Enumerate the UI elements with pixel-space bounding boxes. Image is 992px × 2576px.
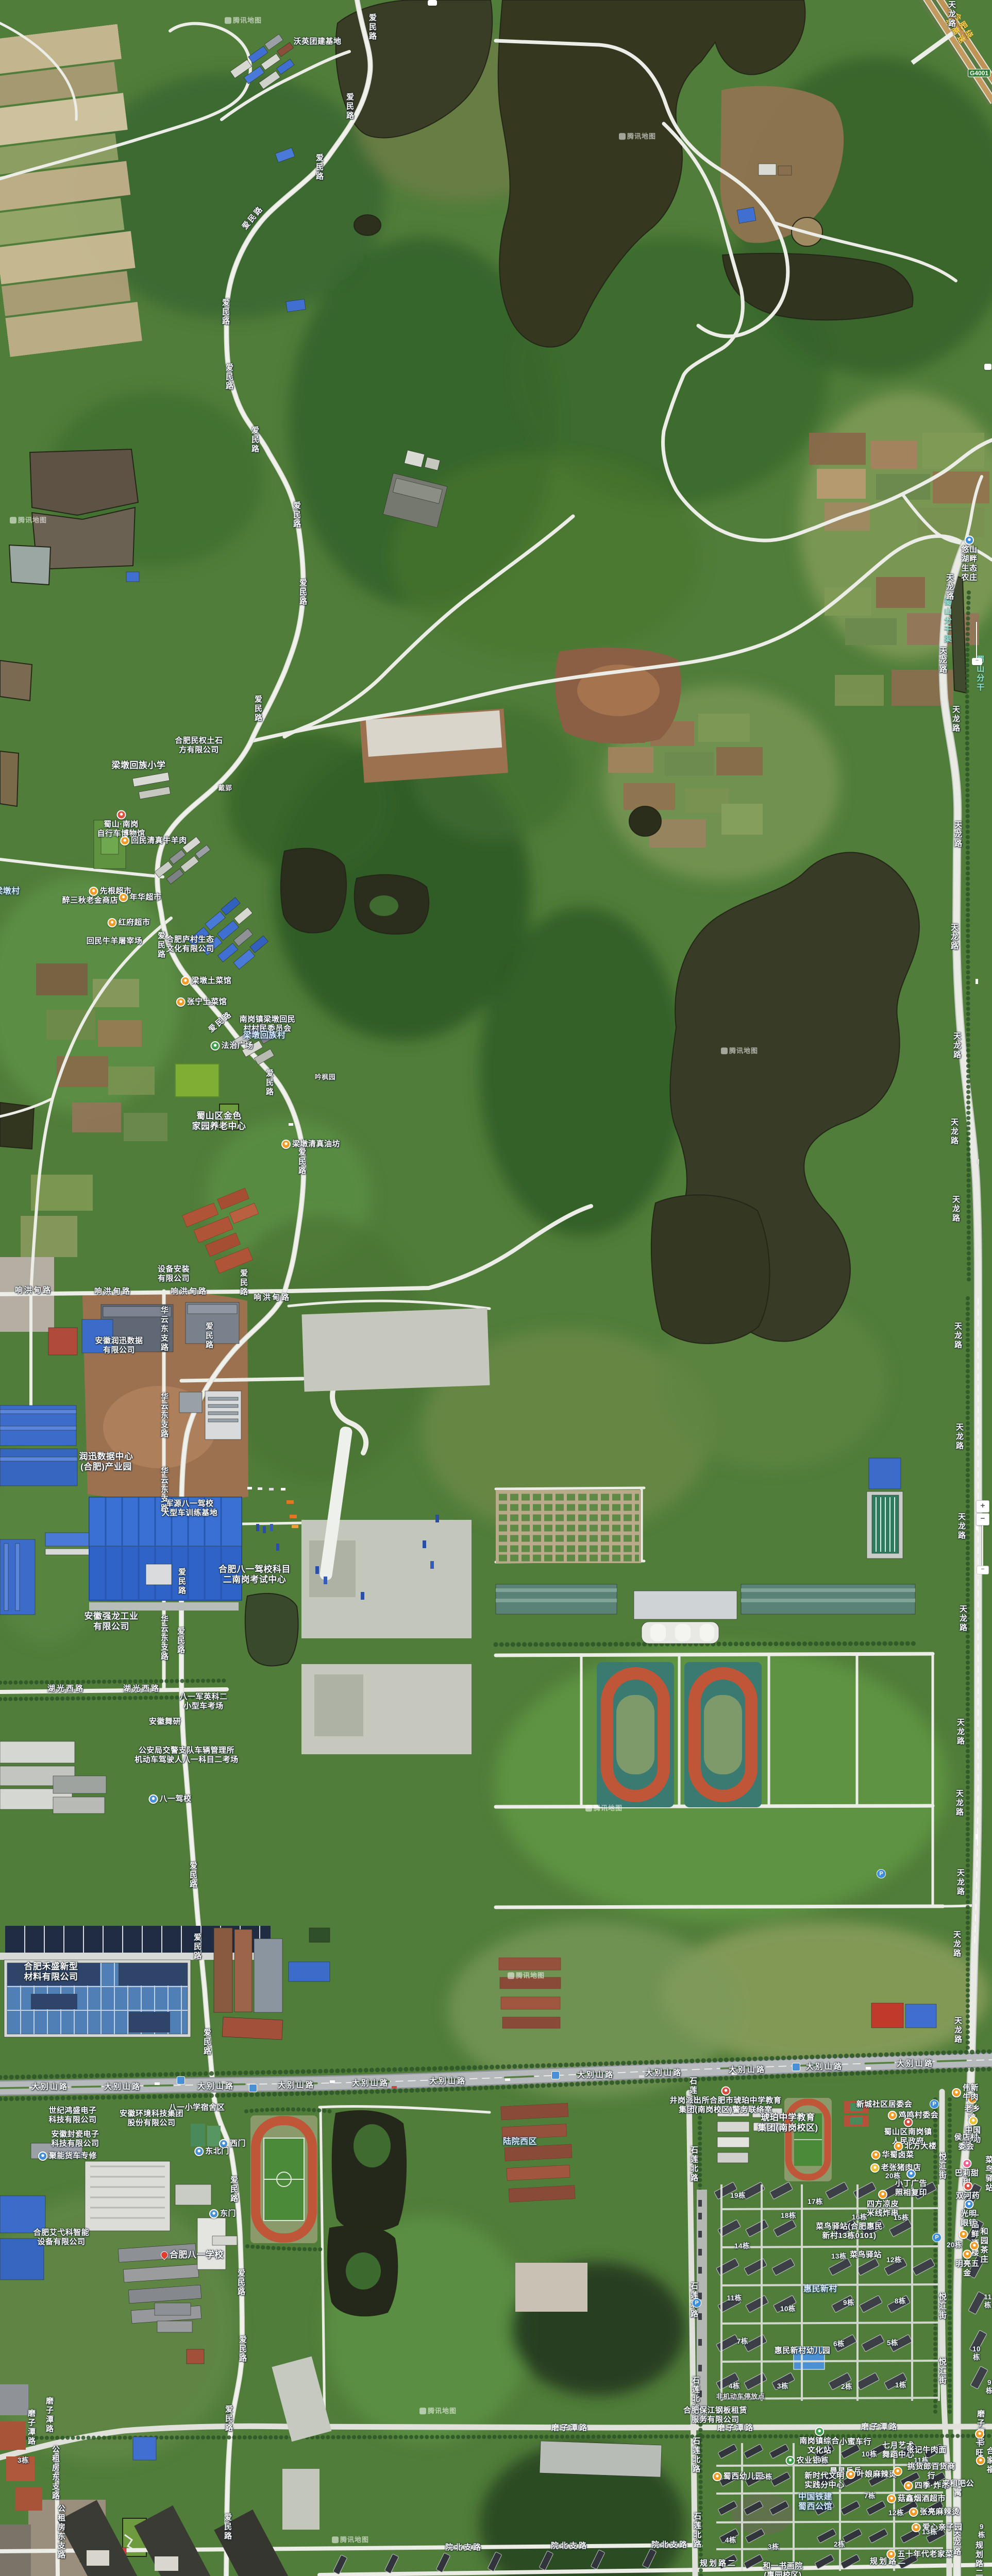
label-text: 天龙路 bbox=[958, 1605, 967, 1633]
label-text: 磨子潭路 bbox=[551, 2424, 589, 2433]
poi-orange-icon[interactable] bbox=[846, 2470, 855, 2479]
road-label: 爱民路 bbox=[176, 1627, 185, 1655]
road-label: 天龙路 bbox=[945, 573, 954, 601]
map-label: 2栋 bbox=[841, 2383, 852, 2391]
poi-orange-icon[interactable] bbox=[181, 976, 190, 986]
zoom-control[interactable]: + − − bbox=[976, 1500, 989, 1574]
poi-orange-icon[interactable] bbox=[176, 997, 186, 1007]
poi-orange-icon[interactable] bbox=[886, 2550, 896, 2559]
poi-label[interactable]: 南岗镇综合 文化站 bbox=[799, 2427, 839, 2455]
label-text: 合肥八一驾校科目 二南岗考试中心 bbox=[218, 1565, 291, 1586]
label-text: 八一驾校 bbox=[159, 1794, 191, 1804]
poi-label: 合肥禾盛新型 材料有限公司 bbox=[24, 1962, 78, 1983]
poi-orange-icon[interactable] bbox=[976, 2456, 985, 2465]
map-label: 1栋 bbox=[895, 2381, 906, 2389]
poi-label: 世纪鸿盛电子 科技有限公司 bbox=[48, 2106, 96, 2125]
poi-label[interactable]: 年华超市 bbox=[119, 893, 161, 902]
poi-label: 合肥民权土石 方有限公司 bbox=[175, 736, 223, 755]
poi-label[interactable]: 井岗派出所合肥市琥珀中学教育 集团(南岗校区)警务联络室 bbox=[669, 2087, 781, 2115]
poi-yellow-icon[interactable] bbox=[968, 2116, 978, 2126]
label-text: 惠民新村幼儿园 bbox=[775, 2346, 831, 2355]
parking-icon[interactable]: P bbox=[692, 2298, 701, 2308]
map-label: 16栋 bbox=[852, 2213, 867, 2222]
poi-gate-icon[interactable] bbox=[148, 1794, 158, 1804]
label-text: 井岗派出所合肥市琥珀中学教育 集团(南岗校区)警务联络室 bbox=[669, 2096, 781, 2115]
label-text: 腾讯地图 bbox=[627, 132, 656, 141]
poi-label[interactable]: 回民清真牛羊肉 bbox=[120, 836, 187, 845]
road-label: 大别山路 bbox=[278, 2081, 315, 2090]
road-label: 爱民路 bbox=[202, 2028, 211, 2056]
road-label: 大别山路 bbox=[31, 2082, 69, 2092]
label-text: 爱民路 bbox=[223, 2513, 232, 2541]
poi-gov-icon[interactable] bbox=[903, 2118, 913, 2127]
road-label: 天龙路 bbox=[951, 1195, 960, 1223]
road-label: 爱民路 bbox=[253, 695, 262, 723]
label-text: 腾讯地图 bbox=[428, 2407, 457, 2415]
watermark: 腾讯地图 bbox=[619, 132, 656, 141]
poi-label[interactable]: 梁墩清真油坊 bbox=[281, 1140, 340, 1149]
label-text: 13栋 bbox=[831, 2252, 847, 2261]
label-text: 7栋 bbox=[737, 2337, 748, 2346]
poi-label[interactable]: 合家福 bbox=[976, 2447, 992, 2475]
poi-orange-icon[interactable] bbox=[975, 2430, 984, 2439]
label-text: 梁墩清真油坊 bbox=[292, 1140, 340, 1149]
label-text: 响洪甸路 bbox=[171, 1287, 208, 1296]
road-label: 规划路二 bbox=[700, 2559, 737, 2568]
poi-label: 戴郢 bbox=[218, 784, 232, 792]
label-text: 年华超市 bbox=[129, 893, 161, 902]
label-text: 腾讯地图 bbox=[729, 1047, 758, 1055]
label-text: 南岗镇综合 文化站 bbox=[799, 2437, 839, 2455]
area-label: 陆院西区 bbox=[503, 2137, 537, 2146]
label-text: 华云东支路 bbox=[159, 1393, 169, 1439]
label-text: 天龙路 bbox=[956, 1513, 966, 1540]
label-text: 小蜜车行 bbox=[839, 2437, 871, 2447]
poi-orange-icon[interactable] bbox=[887, 2494, 896, 2503]
label-text: 爱民路 bbox=[314, 154, 324, 181]
label-text: 11栋 bbox=[727, 2294, 742, 2302]
poi-label: 侯店村委会 bbox=[953, 2133, 979, 2151]
zoom-slider-track[interactable] bbox=[982, 1526, 983, 1566]
label-text: 9栋 bbox=[843, 2299, 854, 2307]
poi-label: 合肥艾弋科智能 设备有限公司 bbox=[33, 2228, 90, 2247]
poi-label: 惠民新村幼儿园 bbox=[775, 2346, 831, 2355]
poi-label[interactable]: 菇鑫烟酒超市 bbox=[887, 2494, 946, 2503]
road-label: 爱民路 bbox=[298, 579, 307, 606]
map-label: 4栋 bbox=[725, 2536, 736, 2545]
road-label: 大别山路 bbox=[429, 2077, 466, 2086]
road-label: 公租房东支路 bbox=[56, 2504, 65, 2560]
poi-label: 菜鸟驿站(合肥惠民 新村13栋0101) bbox=[816, 2222, 883, 2241]
poi-orange-icon[interactable] bbox=[912, 2523, 921, 2532]
poi-blue-icon[interactable] bbox=[906, 2170, 916, 2179]
label-text: 醉三秋老金商店 bbox=[62, 896, 119, 905]
parking-icon[interactable]: P bbox=[877, 1869, 886, 1878]
road-label: 爱民路 bbox=[236, 2269, 245, 2297]
road-label: 爱民路 bbox=[188, 1861, 197, 1889]
poi-label[interactable]: 梁墩土菜馆 bbox=[181, 976, 232, 986]
road-label: 爱民路 bbox=[156, 931, 165, 959]
poi-label: 设备安装 有限公司 bbox=[158, 1265, 190, 1283]
poi-orange-icon[interactable] bbox=[120, 836, 129, 845]
label-text: 湖光西路 bbox=[47, 1684, 85, 1693]
poi-label[interactable]: 小丁广告 照相复印 bbox=[895, 2170, 927, 2198]
poi-label[interactable]: 叶娘麻辣烫 bbox=[846, 2470, 897, 2479]
road-label: 大别山路 bbox=[352, 2079, 389, 2088]
bus-stop-icon[interactable] bbox=[792, 2063, 800, 2071]
poi-label[interactable]: 悠山湖畔 生态农庄 bbox=[958, 536, 981, 583]
bus-stop-icon[interactable] bbox=[177, 2076, 185, 2084]
label-text: 院北支路 bbox=[551, 2541, 588, 2551]
gate-label[interactable]: 东门 bbox=[209, 2209, 236, 2218]
poi-red-icon[interactable] bbox=[963, 2182, 972, 2191]
label-text: 响洪甸路 bbox=[15, 1286, 52, 1295]
label-text: 大别山路 bbox=[577, 2071, 614, 2080]
label-text: 天龙路 bbox=[955, 1869, 965, 1896]
poi-green-icon[interactable] bbox=[785, 2456, 795, 2465]
poi-gate-icon[interactable] bbox=[209, 2209, 218, 2218]
gate-label[interactable]: 东北门 bbox=[194, 2147, 229, 2156]
road-label: 大别山路 bbox=[104, 2082, 141, 2092]
area-label: 梁墩村 bbox=[0, 886, 20, 896]
poi-label[interactable]: 张宁土菜馆 bbox=[176, 997, 227, 1007]
poi-orange-icon[interactable] bbox=[281, 1140, 291, 1149]
poi-label[interactable]: 北方大楼 bbox=[894, 2142, 936, 2151]
label-text: 4栋 bbox=[729, 2382, 740, 2391]
label-text: 爱民路 bbox=[253, 695, 262, 723]
poi-orange-icon[interactable] bbox=[878, 2190, 887, 2199]
watermark: 腾讯地图 bbox=[332, 2536, 369, 2544]
label-text: 聚能货车专修 bbox=[49, 2151, 97, 2161]
road-label: 天龙路 bbox=[954, 1789, 964, 1817]
label-text: 爱民路 bbox=[238, 2335, 247, 2363]
label-text: 梁墩土菜馆 bbox=[192, 976, 232, 986]
poi-label[interactable]: 挑货郎百货商行 bbox=[893, 2462, 959, 2481]
poi-label[interactable]: 明亮五金 bbox=[955, 2250, 980, 2278]
label-text: 菜鸟驿站 bbox=[985, 2156, 992, 2193]
map-label: 11栋 bbox=[984, 2293, 991, 2310]
poi-label: 非机动车停放点 bbox=[716, 2393, 765, 2401]
label-text: 琥珀中学教育 集团(南岗校区) bbox=[758, 2113, 818, 2134]
label-text: 爱民路 bbox=[221, 298, 230, 326]
poi-label[interactable]: 法治广场 bbox=[210, 1041, 253, 1050]
poi-pink-icon[interactable] bbox=[962, 2159, 971, 2168]
label-text: 石莲北路 bbox=[689, 2146, 698, 2183]
poi-label[interactable]: 八一驾校 bbox=[148, 1794, 191, 1804]
label-text: 华蜀卤菜 bbox=[882, 2150, 914, 2160]
label-text: 磨子潭路 bbox=[717, 2424, 754, 2433]
poi-label: 菜鸟驿站 bbox=[985, 2156, 992, 2193]
label-text: 磨子潭路 bbox=[44, 2397, 54, 2434]
label-text: 爱民路 bbox=[239, 1269, 248, 1297]
poi-label: 安徽润迅数据 有限公司 bbox=[95, 1336, 143, 1355]
road-label: 大别山路 bbox=[645, 2069, 682, 2078]
map-label: 7栋 bbox=[864, 2492, 876, 2500]
label-text: 大别山路 bbox=[429, 2077, 466, 2086]
label-text: 6栋 bbox=[833, 2340, 845, 2348]
poi-orange-icon[interactable] bbox=[970, 2241, 979, 2250]
label-text: 8栋 bbox=[895, 2297, 906, 2306]
label-text: 安徽润迅数据 有限公司 bbox=[95, 1336, 143, 1355]
label-text: 明亮五金 bbox=[955, 2260, 980, 2278]
label-text: 9栋 bbox=[817, 2456, 829, 2465]
satellite-canvas[interactable] bbox=[0, 0, 992, 2576]
label-text: P bbox=[877, 1869, 886, 1878]
road-label: 爱民路 bbox=[224, 2405, 233, 2433]
road-label: 大别山路 bbox=[729, 2065, 766, 2075]
label-text: 中国铁建 蜀西公馆 bbox=[798, 2492, 832, 2512]
label-text: 湖光西路 bbox=[123, 1684, 160, 1693]
label-text: 9栋 bbox=[977, 2523, 987, 2539]
poi-red-icon[interactable] bbox=[116, 810, 126, 820]
poi-label: 回民牛羊屠宰场 bbox=[87, 937, 143, 946]
poi-label[interactable]: 蜀西幼儿园 bbox=[713, 2472, 764, 2481]
label-text: 安徽封瓷电子 科技有限公司 bbox=[51, 2130, 99, 2148]
bus-stop-icon[interactable] bbox=[551, 2071, 560, 2079]
map-label: 15栋 bbox=[894, 2214, 909, 2222]
road-label: 天龙路 bbox=[949, 1118, 959, 1146]
poi-gov-icon[interactable] bbox=[721, 2087, 730, 2096]
poi-orange-icon[interactable] bbox=[89, 887, 98, 896]
road-label: 爱民路 bbox=[297, 1148, 306, 1176]
label-text: 梁墩回族村 bbox=[243, 1030, 286, 1040]
label-text: 17栋 bbox=[808, 2198, 823, 2206]
road-label: 爱民路 bbox=[250, 426, 259, 454]
label-text: 华云东支路 bbox=[159, 1306, 169, 1352]
road-label: 爱民路 bbox=[238, 2335, 247, 2363]
poi-orange-icon[interactable] bbox=[871, 2150, 880, 2160]
label-text: 石莲北路 bbox=[691, 2437, 700, 2474]
poi-label: 润迅数据中心 (合肥)产业园 bbox=[79, 1452, 133, 1473]
label-text: 11栋 bbox=[984, 2293, 991, 2310]
watermark: 腾讯地图 bbox=[10, 516, 47, 524]
label-text: 北方大楼 bbox=[904, 2142, 936, 2151]
label-text: 非机动车停放点 bbox=[716, 2393, 765, 2401]
label-text: 9栋 bbox=[986, 2379, 992, 2395]
label-text: 14栋 bbox=[734, 2242, 750, 2250]
poi-label[interactable]: 张亮麻辣烫 bbox=[909, 2507, 960, 2517]
map-label: 9栋 bbox=[817, 2456, 829, 2465]
road-label: 响洪甸路 bbox=[171, 1287, 208, 1296]
parking-icon[interactable]: P bbox=[930, 2099, 939, 2109]
map-label: 12栋 bbox=[888, 2509, 904, 2517]
poi-label[interactable]: 华蜀卤菜 bbox=[871, 2150, 914, 2160]
map-label: 3栋 bbox=[18, 2456, 29, 2465]
label-text: 大别山路 bbox=[806, 2062, 843, 2072]
map-label: 7栋 bbox=[737, 2337, 748, 2346]
label-text: 沃英团建基地 bbox=[293, 37, 341, 46]
label-text: 爱民路 bbox=[345, 93, 354, 121]
zoom-out-button[interactable]: − bbox=[976, 1513, 989, 1526]
poi-label[interactable]: 五十年代老家菜 bbox=[886, 2550, 953, 2559]
label-text: 悦汇街 bbox=[937, 2358, 947, 2385]
road-label: 爱民路 bbox=[239, 1269, 248, 1297]
label-text: 天龙路 bbox=[953, 1322, 962, 1350]
road-label: 响洪甸路 bbox=[254, 1293, 291, 1302]
label-text: 天龙路 bbox=[952, 1930, 961, 1958]
label-text: 天龙路 bbox=[951, 705, 960, 733]
label-text: 18栋 bbox=[781, 2212, 796, 2220]
poi-orange-icon[interactable] bbox=[893, 2467, 902, 2476]
label-text: 菜鸟驿站(合肥惠民 新村13栋0101) bbox=[816, 2222, 883, 2241]
label-text: 5栋 bbox=[887, 2339, 898, 2347]
label-text: 设备安装 有限公司 bbox=[158, 1265, 190, 1283]
label-text: 合肥保江钢板租赁 服务有限公司 bbox=[683, 2406, 747, 2425]
label-text: 陆院西区 bbox=[503, 2137, 537, 2146]
label-text: 安徽强龙工业 有限公司 bbox=[85, 1612, 139, 1633]
label-text: 16栋 bbox=[852, 2213, 867, 2222]
parking-icon[interactable]: P bbox=[932, 2233, 941, 2242]
map-control-partial[interactable] bbox=[984, 364, 991, 370]
label-text: 伟新牛肉 bbox=[963, 2083, 979, 2102]
poi-orange-icon[interactable] bbox=[894, 2142, 903, 2151]
watermark: 腾讯地图 bbox=[721, 1047, 758, 1055]
road-label: 天龙路 bbox=[947, 1, 956, 28]
label-text: 天龙路 bbox=[954, 1423, 964, 1451]
label-text: 磨子潭路 bbox=[861, 2422, 898, 2432]
label-text: 张亮麻辣烫 bbox=[920, 2507, 960, 2517]
map-pin-icon[interactable] bbox=[159, 2250, 170, 2260]
poi-label[interactable]: 合肥八一学校 bbox=[161, 2250, 224, 2260]
road-label: 院北支路 bbox=[551, 2541, 588, 2551]
road-label: 天龙路 bbox=[954, 1423, 964, 1451]
label-text: 新城社区居委会 bbox=[856, 2100, 913, 2109]
road-label: 响洪甸路 bbox=[94, 1287, 131, 1296]
poi-label[interactable]: 伟新牛肉 bbox=[952, 2083, 979, 2102]
label-text: 爱民路 bbox=[177, 1568, 186, 1596]
map-label: 10栋 bbox=[780, 2305, 796, 2313]
poi-label: 张记牛肉面 bbox=[906, 2446, 947, 2455]
poi-label[interactable]: 蜀山·南岗 自行车博物馆 bbox=[97, 810, 145, 839]
map-label: 20栋 bbox=[947, 2241, 962, 2249]
poi-label: 公安局交警支队车辆管理所 机动车驾驶人八一科目二考场 bbox=[134, 1746, 239, 1765]
road-label: 爱民路 bbox=[292, 501, 301, 529]
road-label: 天龙路 bbox=[955, 1869, 965, 1896]
highway-shield: G4001 bbox=[968, 69, 990, 77]
label-text: 大别山路 bbox=[897, 2059, 934, 2069]
label-text: 爱民路 bbox=[188, 1861, 197, 1889]
label-text: 天龙路 bbox=[947, 1, 956, 28]
map-label: 9栋 bbox=[986, 2379, 992, 2395]
road-label: 天龙路 bbox=[938, 647, 947, 674]
poi-orange-icon[interactable] bbox=[713, 2472, 722, 2481]
poi-label: 合肥八一驾校科目 二南岗考试中心 bbox=[218, 1565, 291, 1586]
bus-stop-icon[interactable] bbox=[249, 2084, 257, 2092]
label-text: P bbox=[932, 2233, 941, 2242]
area-label: 惠民新村 bbox=[803, 2284, 837, 2294]
label-text: 腾讯地图 bbox=[516, 1972, 545, 1980]
label-text: 回民牛羊屠宰场 bbox=[87, 937, 143, 946]
map-label: 17栋 bbox=[808, 2198, 823, 2206]
poi-label: 军源八一驾校 大型车训练基地 bbox=[162, 1499, 218, 1518]
poi-orange-icon[interactable] bbox=[963, 2250, 972, 2259]
label-text: 合家福 bbox=[987, 2447, 992, 2475]
label-text: 12栋 bbox=[888, 2509, 904, 2517]
poi-orange-icon[interactable] bbox=[959, 2230, 968, 2239]
poi-label[interactable]: 聚能货车专修 bbox=[38, 2151, 97, 2161]
road-label: 公租房东支路 bbox=[51, 2445, 60, 2501]
poi-orange-icon[interactable] bbox=[119, 893, 128, 902]
zoom-slider-track-partial[interactable] bbox=[976, 622, 977, 659]
poi-yellow-icon[interactable] bbox=[870, 2163, 880, 2173]
road-label: 石莲北路 bbox=[692, 2512, 701, 2549]
label-text: 12栋 bbox=[886, 2256, 902, 2264]
label-text: 4栋 bbox=[725, 2536, 736, 2545]
label-text: 爱民路 bbox=[224, 2405, 233, 2433]
tencent-logo-icon bbox=[332, 2537, 339, 2544]
label-text: 爱民路 bbox=[292, 501, 301, 529]
poi-label: 八一小学宿舍区 bbox=[169, 2103, 225, 2112]
label-text: 大别山路 bbox=[645, 2069, 682, 2078]
poi-orange-icon[interactable] bbox=[909, 2507, 918, 2517]
label-text: 爱民路 bbox=[236, 2269, 245, 2297]
label-text: 15栋 bbox=[894, 2214, 909, 2222]
label-text: 合肥艾弋科智能 设备有限公司 bbox=[33, 2228, 90, 2247]
label-text: 响洪甸路 bbox=[254, 1293, 291, 1302]
poi-orange-icon[interactable] bbox=[904, 2481, 913, 2490]
poi-gate-icon[interactable] bbox=[194, 2147, 204, 2156]
label-text: 10栋 bbox=[780, 2305, 796, 2313]
poi-label: 醉三秋老金商店 bbox=[62, 896, 119, 905]
label-text: 石莲北路 bbox=[692, 2512, 701, 2549]
label-text: 侯店村委会 bbox=[953, 2133, 979, 2151]
label-text: 响洪甸路 bbox=[94, 1287, 131, 1296]
label-text: 规划路二 bbox=[974, 2541, 986, 2576]
label-text: 红府超市 bbox=[118, 918, 150, 927]
poi-label: 安徽封瓷电子 科技有限公司 bbox=[51, 2130, 99, 2148]
zoom-in-button[interactable]: + bbox=[976, 1500, 989, 1513]
poi-orange-icon[interactable] bbox=[107, 918, 116, 927]
road-label: 天龙路 bbox=[958, 1605, 967, 1633]
tencent-logo-icon bbox=[619, 133, 626, 140]
label-text: 大别山路 bbox=[197, 2082, 234, 2091]
map-label: 13栋 bbox=[831, 2252, 847, 2261]
road-label: 爱民路 bbox=[367, 13, 377, 41]
road-label: 天龙路 bbox=[949, 923, 959, 951]
poi-orange-icon[interactable] bbox=[952, 2088, 961, 2097]
poi-green-icon[interactable] bbox=[210, 1041, 220, 1050]
label-text: 合肥八一学校 bbox=[170, 2250, 224, 2260]
road-label: 天龙路 bbox=[951, 705, 960, 733]
label-text: 天龙路 bbox=[945, 573, 954, 601]
zoom-slider-handle[interactable]: − bbox=[977, 1566, 989, 1574]
label-text: 腾讯地图 bbox=[594, 1804, 623, 1812]
label-text bbox=[249, 2084, 257, 2092]
road-label: 爱民路 bbox=[224, 363, 233, 391]
poi-label: 新时代文明 实践分中心 bbox=[804, 2471, 845, 2490]
map-viewport[interactable]: + − − − G4001 合肥绕城高速 腾讯地图腾讯地图腾讯地图腾讯地图腾讯地… bbox=[0, 0, 992, 2576]
tencent-logo-icon bbox=[585, 1805, 592, 1812]
poi-label[interactable]: 红府超市 bbox=[107, 918, 150, 927]
label-text: 大别山路 bbox=[729, 2065, 766, 2075]
road-label: 天龙路 bbox=[952, 1930, 961, 1958]
poi-blue-icon[interactable] bbox=[965, 536, 974, 545]
map-label: 14栋 bbox=[734, 2242, 750, 2250]
poi-green-icon[interactable] bbox=[815, 2427, 824, 2436]
poi-label: 安徽舞研 bbox=[149, 1717, 181, 1726]
poi-blue-icon[interactable] bbox=[964, 2200, 973, 2209]
zoom-slider-handle-partial[interactable]: − bbox=[972, 658, 982, 665]
poi-blue-icon[interactable] bbox=[38, 2151, 47, 2161]
label-text: 菇鑫烟酒超市 bbox=[898, 2494, 946, 2503]
poi-label: 和一书画院 (惠园校区) bbox=[763, 2562, 803, 2576]
tencent-logo-icon bbox=[508, 1973, 514, 1979]
road-label: 大别山路 bbox=[806, 2062, 843, 2072]
map-label: 13栋 bbox=[922, 2528, 937, 2536]
label-text: 规划路二 bbox=[700, 2559, 737, 2568]
label-text: 蜀西幼儿园 bbox=[724, 2472, 764, 2481]
label-text: 爱民路 bbox=[250, 426, 259, 454]
